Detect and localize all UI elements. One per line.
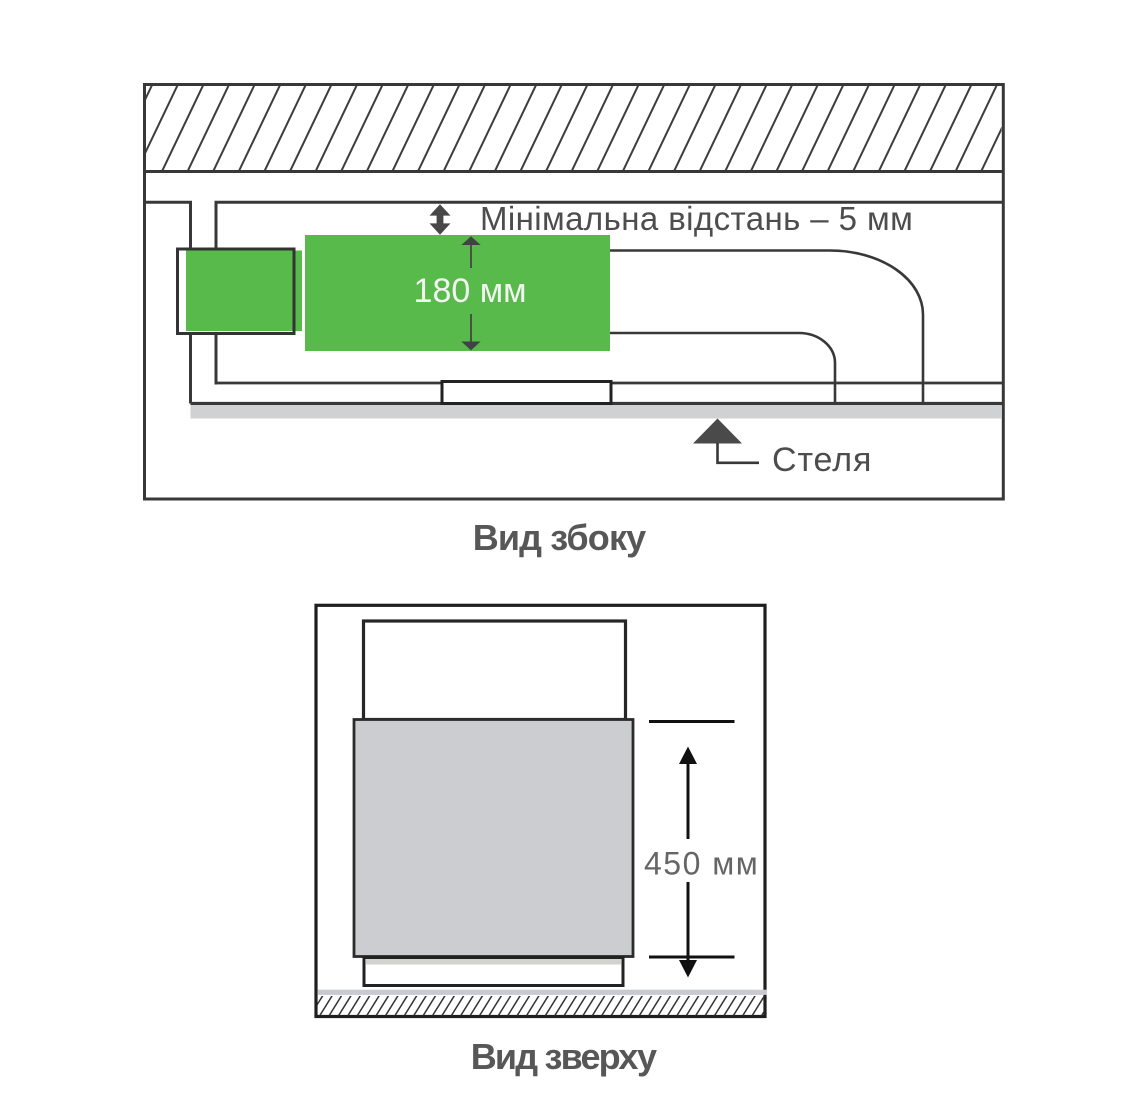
svg-text:Мінімальна відстань – 5 мм: Мінімальна відстань – 5 мм	[480, 200, 913, 237]
svg-text:180 мм: 180 мм	[414, 272, 527, 310]
svg-text:Вид зверху: Вид зверху	[471, 1036, 657, 1077]
svg-text:Вид збоку: Вид збоку	[473, 517, 646, 558]
svg-text:450 мм: 450 мм	[644, 846, 759, 882]
svg-text:Стеля: Стеля	[772, 441, 872, 479]
